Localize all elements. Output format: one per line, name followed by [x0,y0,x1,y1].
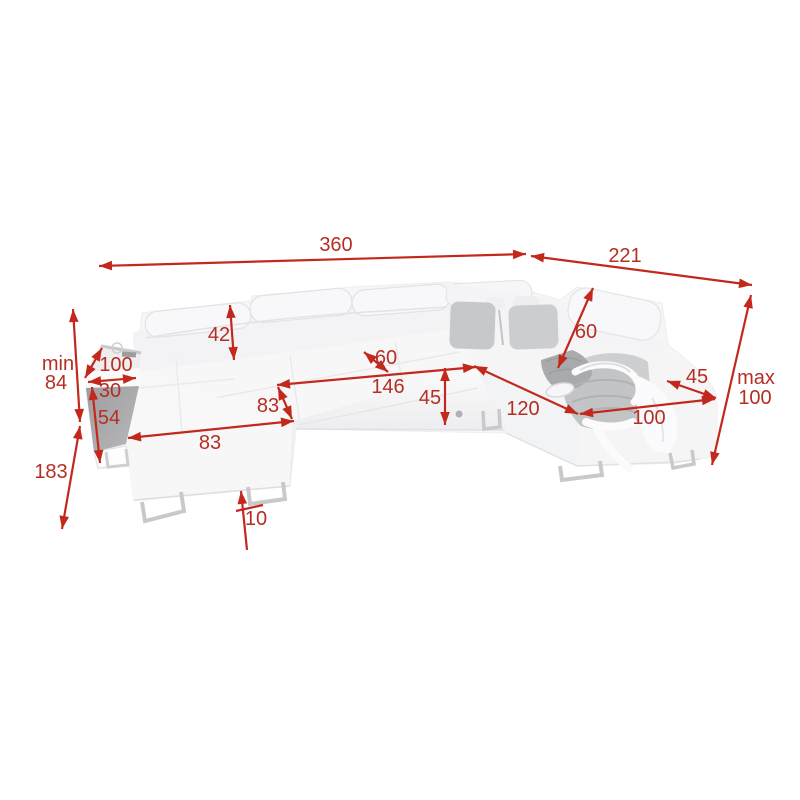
svg-text:83: 83 [257,395,279,417]
svg-text:45: 45 [419,387,441,409]
svg-text:100: 100 [632,407,665,429]
svg-text:42: 42 [208,324,230,346]
svg-text:100: 100 [99,354,132,376]
svg-text:30: 30 [99,380,121,402]
svg-text:360: 360 [319,234,352,256]
svg-text:84: 84 [45,372,67,394]
svg-text:146: 146 [371,376,404,398]
svg-text:54: 54 [98,407,120,429]
svg-text:100: 100 [738,387,771,409]
svg-text:60: 60 [375,347,397,369]
svg-text:120: 120 [506,398,539,420]
svg-text:45: 45 [686,366,708,388]
svg-text:10: 10 [245,508,267,530]
svg-text:max: max [737,367,775,389]
svg-text:83: 83 [199,432,221,454]
svg-text:60: 60 [575,321,597,343]
svg-text:221: 221 [608,245,641,267]
svg-text:183: 183 [34,461,67,483]
